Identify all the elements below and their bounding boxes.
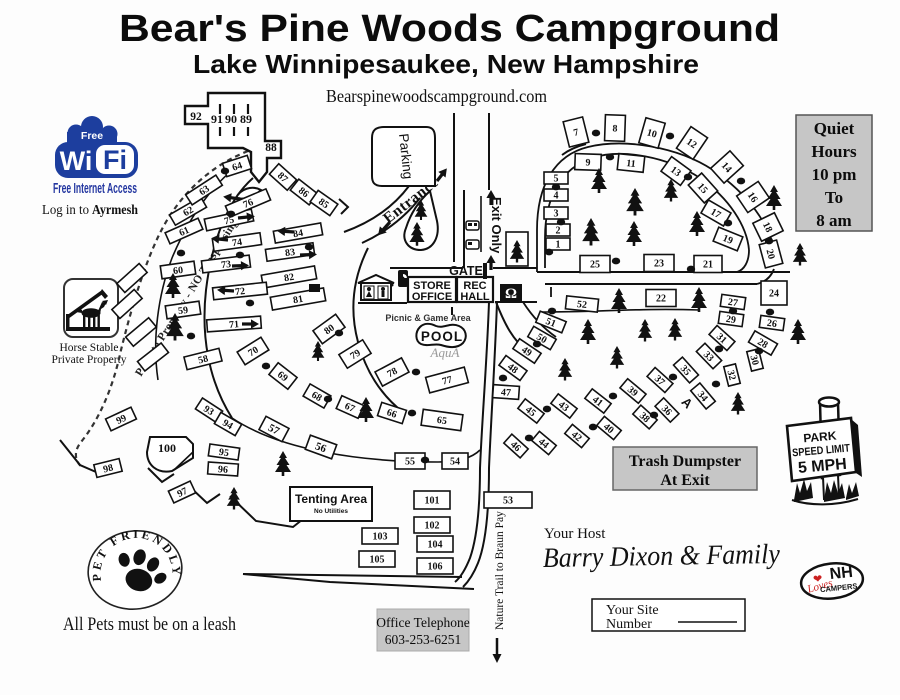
svg-text:102: 102 (425, 521, 440, 532)
svg-text:25: 25 (590, 260, 600, 271)
svg-text:23: 23 (654, 259, 664, 270)
svg-text:8 am: 8 am (816, 211, 851, 230)
svg-text:At Exit: At Exit (660, 472, 710, 489)
svg-text:81: 81 (292, 294, 304, 307)
svg-text:Number: Number (606, 617, 652, 632)
svg-text:92: 92 (190, 111, 202, 123)
svg-text:55: 55 (405, 457, 415, 468)
svg-text:Fi: Fi (103, 145, 127, 175)
svg-text:Free Internet Access: Free Internet Access (53, 181, 137, 197)
svg-text:All Pets must be on a leash: All Pets must be on a leash (63, 614, 236, 635)
svg-text:91: 91 (211, 112, 223, 126)
svg-text:10 pm: 10 pm (812, 165, 857, 184)
svg-text:Quiet: Quiet (814, 119, 855, 138)
svg-text:53: 53 (503, 496, 513, 507)
svg-text:52: 52 (576, 299, 587, 311)
svg-text:71: 71 (229, 319, 240, 331)
svg-text:73: 73 (220, 259, 231, 271)
svg-text:72: 72 (235, 286, 246, 298)
svg-text:21: 21 (703, 260, 713, 271)
svg-text:88: 88 (265, 142, 277, 154)
svg-text:9: 9 (585, 157, 590, 168)
svg-text:105: 105 (370, 555, 385, 566)
svg-text:Your Site: Your Site (606, 603, 659, 618)
svg-text:Exit Only: Exit Only (489, 197, 504, 254)
svg-text:22: 22 (656, 294, 666, 305)
svg-text:NH: NH (829, 564, 854, 583)
svg-text:Ω: Ω (505, 286, 517, 302)
svg-text:104: 104 (428, 540, 443, 551)
svg-text:4: 4 (554, 191, 559, 202)
svg-text:83: 83 (284, 247, 295, 259)
svg-text:Ayrmesh: Ayrmesh (92, 203, 138, 218)
svg-text:No Utilities: No Utilities (314, 508, 348, 515)
svg-text:96: 96 (218, 464, 229, 476)
svg-text:Office Telephone: Office Telephone (376, 615, 469, 630)
svg-text:65: 65 (436, 415, 447, 427)
svg-text:100: 100 (158, 441, 176, 455)
svg-text:24: 24 (769, 289, 779, 300)
svg-text:11: 11 (626, 158, 637, 170)
svg-text:Bearspinewoodscampground.com: Bearspinewoodscampground.com (326, 86, 547, 106)
svg-text:603-253-6251: 603-253-6251 (385, 632, 462, 647)
svg-text:Nature Trail to Braun Pay: Nature Trail to Braun Pay (494, 511, 506, 630)
svg-text:Wi: Wi (60, 146, 93, 176)
svg-text:89: 89 (240, 112, 252, 126)
svg-text:101: 101 (425, 496, 440, 507)
svg-text:59: 59 (177, 305, 188, 317)
svg-text:Barry Dixon & Family: Barry Dixon & Family (543, 539, 781, 574)
svg-text:Trash Dumpster: Trash Dumpster (629, 453, 741, 470)
svg-text:Private Property: Private Property (51, 354, 126, 366)
svg-text:Picnic & Game Area: Picnic & Game Area (385, 313, 471, 323)
svg-text:HALL: HALL (460, 291, 490, 303)
svg-text:8: 8 (612, 123, 617, 134)
svg-text:84: 84 (292, 228, 304, 241)
svg-text:Free: Free (81, 130, 103, 142)
svg-text:Tenting Area: Tenting Area (295, 492, 367, 506)
svg-text:Bear's Pine Woods Campground: Bear's Pine Woods Campground (119, 8, 780, 50)
svg-text:Horse Stable: Horse Stable (59, 342, 118, 354)
svg-text:74: 74 (231, 237, 242, 249)
svg-text:29: 29 (725, 314, 736, 326)
svg-text:103: 103 (373, 532, 388, 543)
svg-text:To: To (825, 188, 843, 207)
svg-text:82: 82 (283, 272, 295, 285)
svg-text:5: 5 (554, 174, 559, 185)
svg-text:54: 54 (450, 457, 460, 468)
svg-text:Log in to: Log in to (42, 203, 89, 218)
svg-text:95: 95 (218, 447, 229, 459)
svg-text:3: 3 (554, 209, 559, 220)
svg-text:47: 47 (501, 387, 512, 399)
svg-text:OFFICE: OFFICE (412, 291, 452, 303)
svg-text:Hours: Hours (811, 142, 857, 161)
svg-text:106: 106 (428, 562, 443, 573)
svg-text:2: 2 (556, 226, 561, 237)
svg-text:Your Host: Your Host (544, 526, 606, 542)
svg-text:90: 90 (225, 112, 237, 126)
svg-text:1: 1 (556, 240, 561, 251)
svg-text:Lake Winnipesaukee, New Hampsh: Lake Winnipesaukee, New Hampshire (193, 49, 699, 79)
svg-text:27: 27 (727, 297, 738, 309)
svg-text:AquA: AquA (430, 345, 460, 360)
svg-text:GATE: GATE (449, 264, 483, 278)
svg-text:POOL: POOL (421, 329, 463, 344)
svg-text:26: 26 (766, 318, 777, 330)
svg-text:PARK: PARK (803, 429, 838, 446)
